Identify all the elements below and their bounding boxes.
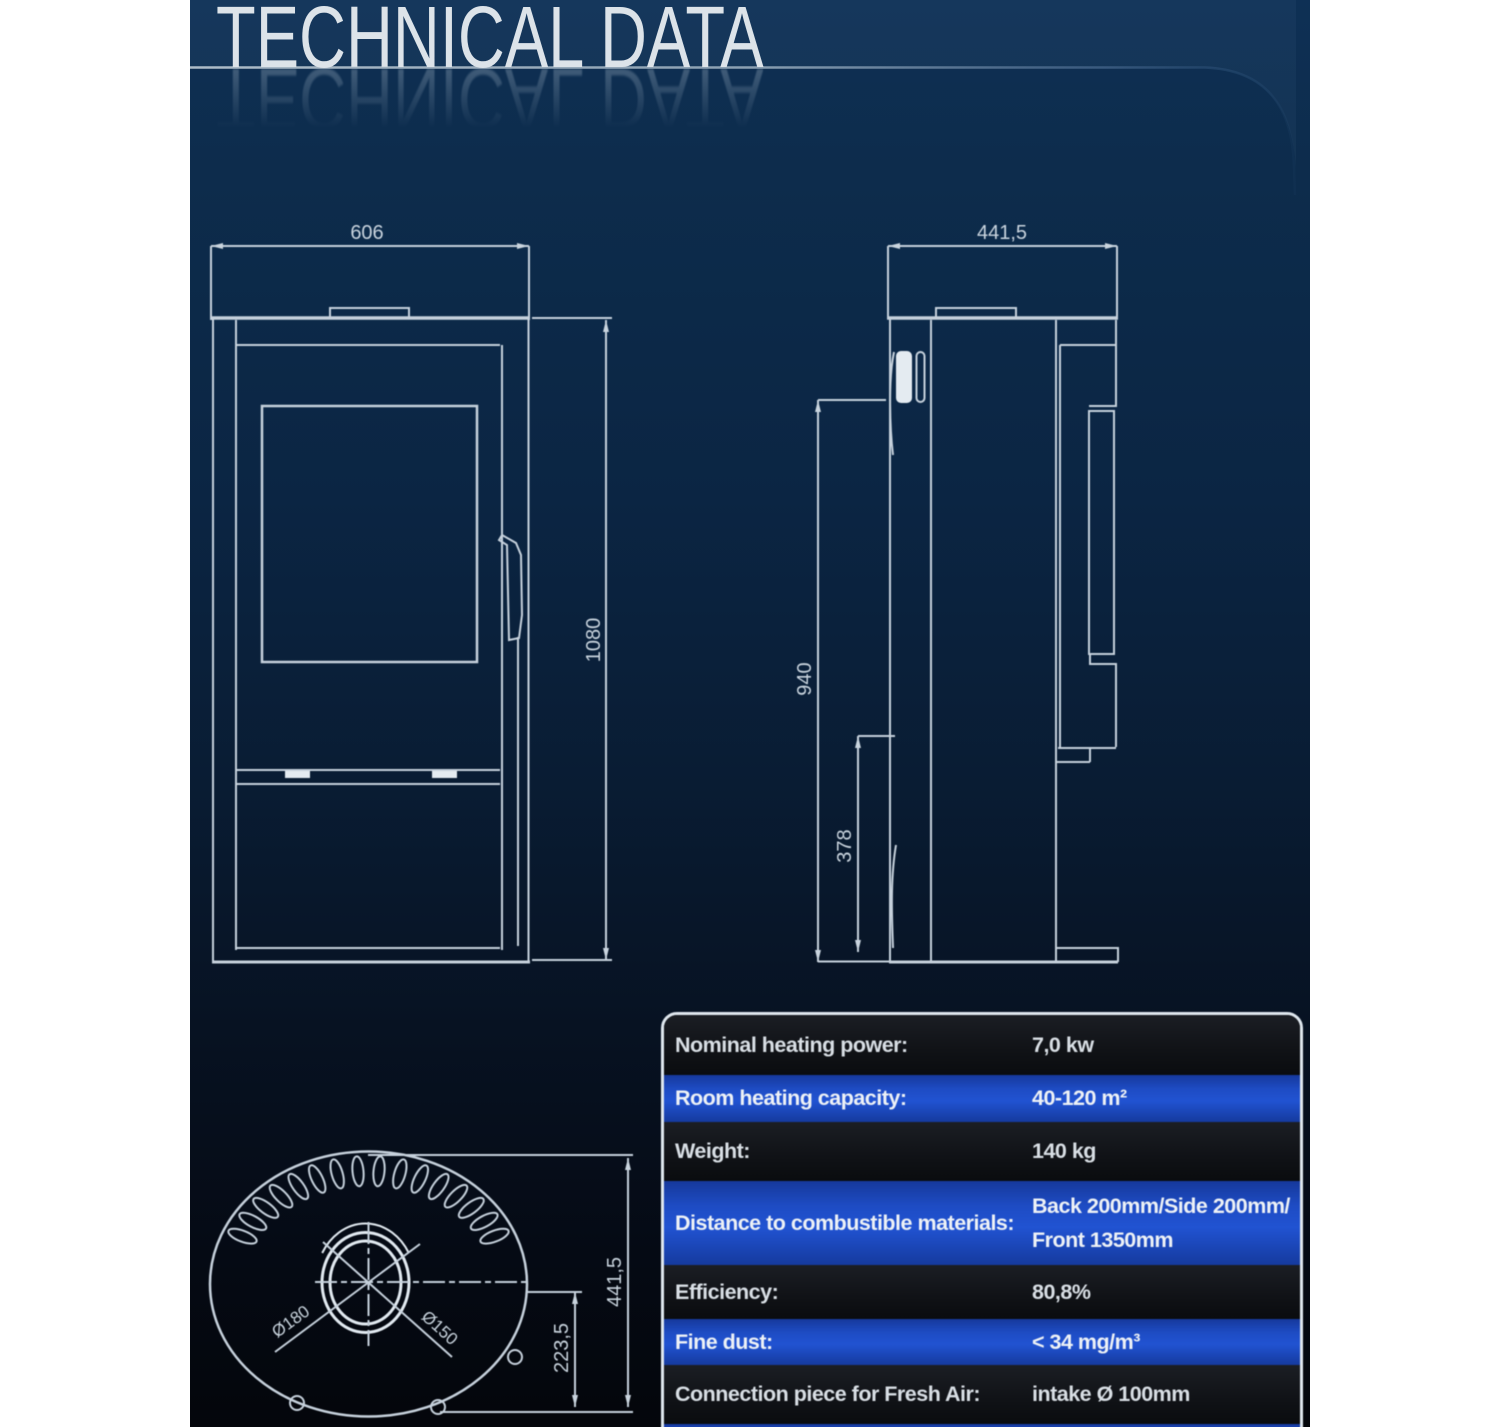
svg-text:606: 606 xyxy=(350,222,383,244)
svg-text:223,5: 223,5 xyxy=(551,1323,573,1373)
svg-text:1080: 1080 xyxy=(583,618,605,663)
svg-text:Ø150: Ø150 xyxy=(418,1307,462,1349)
svg-text:378: 378 xyxy=(834,829,856,862)
svg-text:441,5: 441,5 xyxy=(604,1257,626,1307)
svg-text:Ø180: Ø180 xyxy=(268,1302,313,1342)
svg-text:940: 940 xyxy=(794,662,816,695)
svg-text:441,5: 441,5 xyxy=(977,222,1027,244)
